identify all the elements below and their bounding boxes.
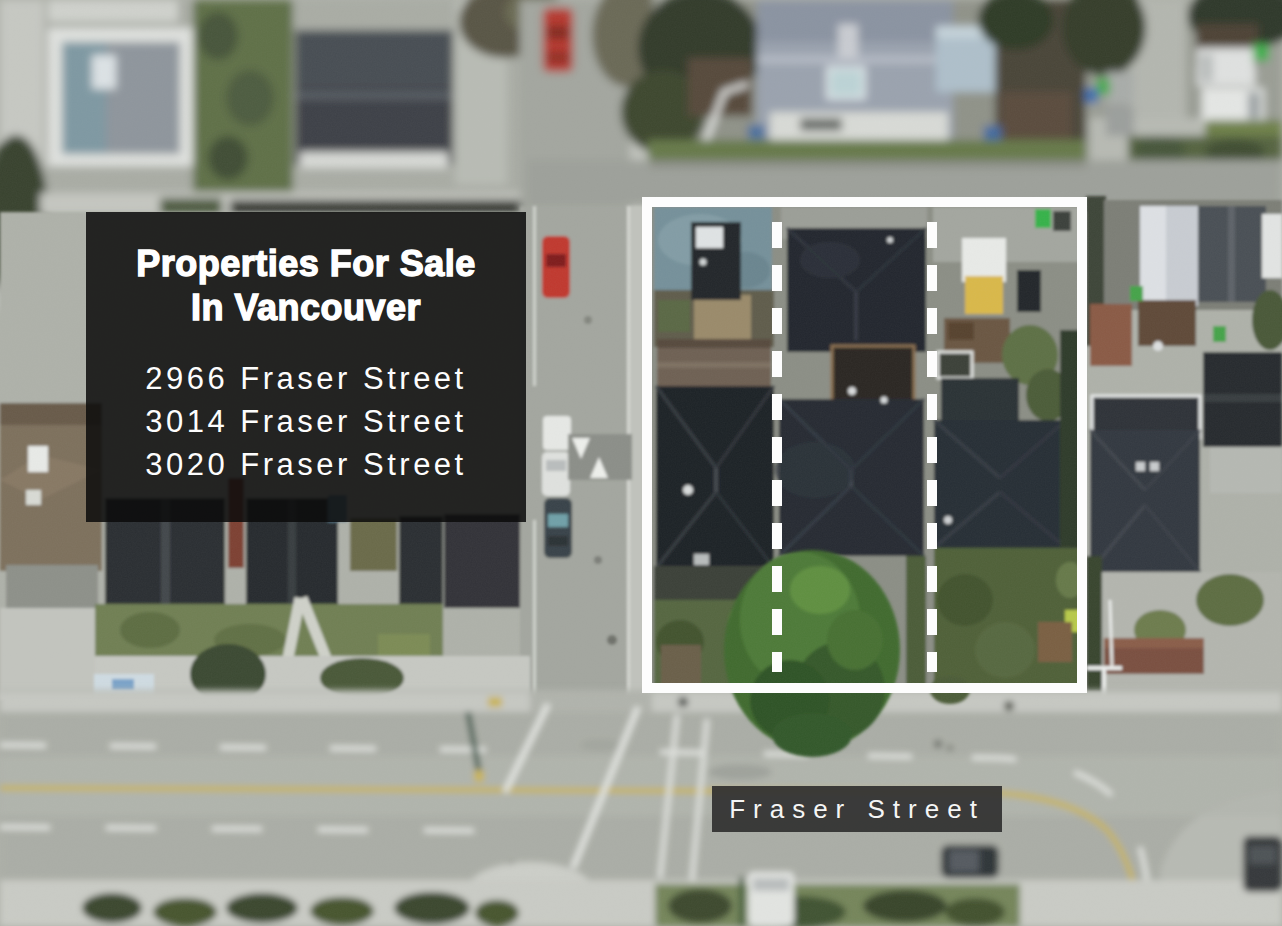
address-list: 2966 Fraser Street 3014 Fraser Street 30…	[86, 357, 526, 486]
street-name-label: Fraser Street	[712, 786, 1002, 832]
address-line: 3014 Fraser Street	[86, 400, 526, 443]
screenshot-root: Properties For Sale In Vancouver 2966 Fr…	[0, 0, 1282, 926]
lot-divider-dashed-line-2	[927, 222, 937, 672]
info-panel: Properties For Sale In Vancouver 2966 Fr…	[86, 212, 526, 522]
lot-divider-dashed-line-1	[772, 222, 782, 672]
address-line: 2966 Fraser Street	[86, 357, 526, 400]
info-title: Properties For Sale In Vancouver	[86, 242, 526, 330]
address-line: 3020 Fraser Street	[86, 443, 526, 486]
info-title-line1: Properties For Sale	[86, 242, 526, 286]
street-name-text: Fraser Street	[729, 794, 985, 825]
property-boundary-outline	[642, 197, 1087, 693]
info-title-line2: In Vancouver	[86, 286, 526, 330]
